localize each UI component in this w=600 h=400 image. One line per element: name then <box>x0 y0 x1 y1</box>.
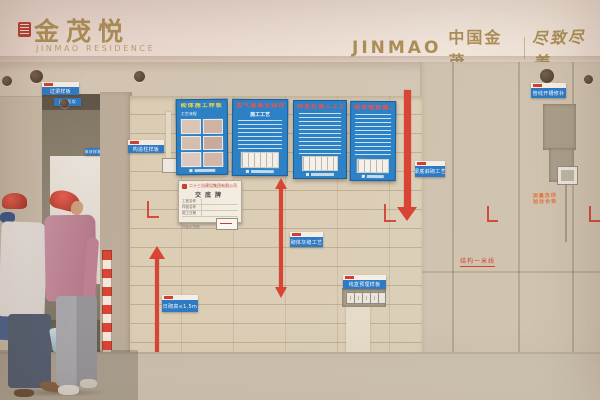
worker-sneaker <box>80 379 97 388</box>
worker-jeans <box>8 314 51 388</box>
workers-group <box>0 0 600 400</box>
worker-shoe <box>14 389 34 397</box>
worker-gray-pants <box>56 296 97 386</box>
worker-sneaker <box>58 385 79 395</box>
hard-hat-red <box>2 193 27 209</box>
worker-white-shirt <box>0 221 48 318</box>
construction-site-photo: 金茂悦 JINMAO RESIDENCE JINMAO 中国金茂 尽致尽美 止水… <box>0 0 600 400</box>
